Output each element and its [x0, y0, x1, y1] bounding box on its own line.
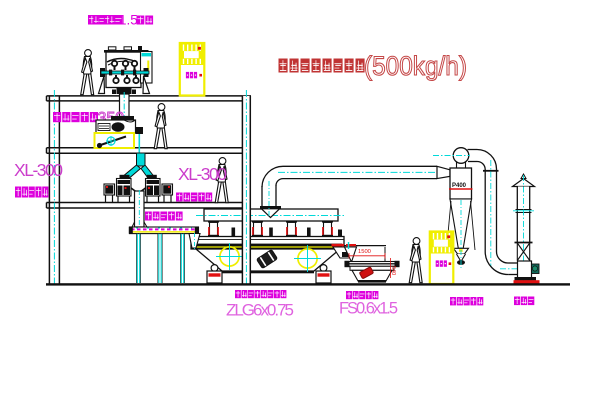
- svg-text:XL-300: XL-300: [178, 164, 227, 184]
- svg-text:P400: P400: [452, 183, 467, 189]
- svg-text:ZLG6x0.75: ZLG6x0.75: [226, 301, 294, 320]
- svg-text:(500kg/h): (500kg/h): [364, 51, 467, 81]
- svg-text:1500: 1500: [358, 249, 371, 255]
- svg-text:XL-300: XL-300: [14, 160, 63, 180]
- svg-text:540: 540: [390, 266, 396, 275]
- svg-text:1.5: 1.5: [119, 13, 138, 28]
- svg-text:FS0.6x1.5: FS0.6x1.5: [339, 300, 398, 318]
